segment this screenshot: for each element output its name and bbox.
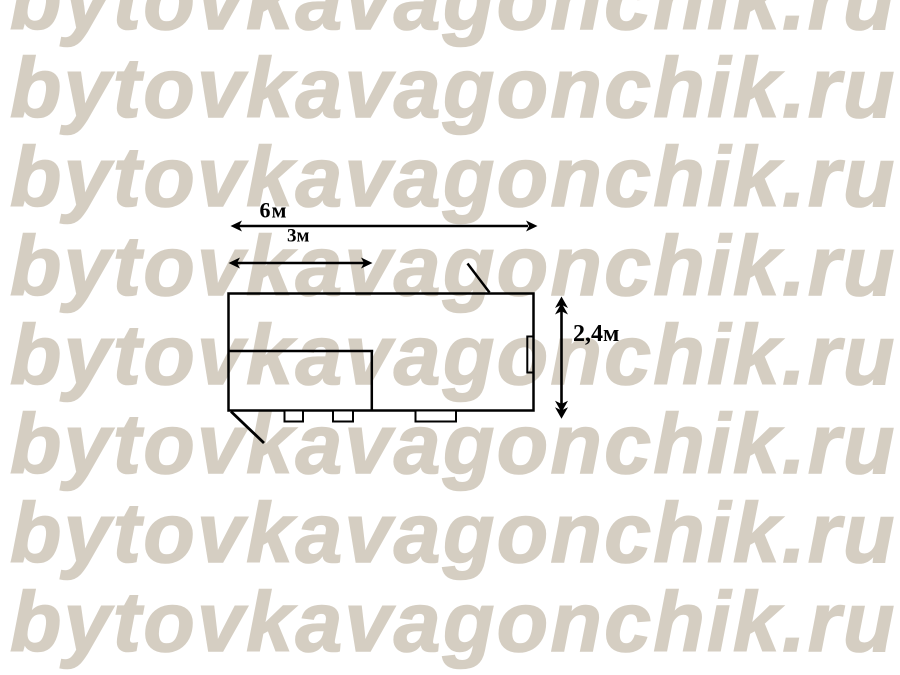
- svg-text:2,4м: 2,4м: [573, 321, 619, 347]
- svg-text:6м: 6м: [260, 198, 288, 223]
- svg-text:3м: 3м: [287, 226, 310, 247]
